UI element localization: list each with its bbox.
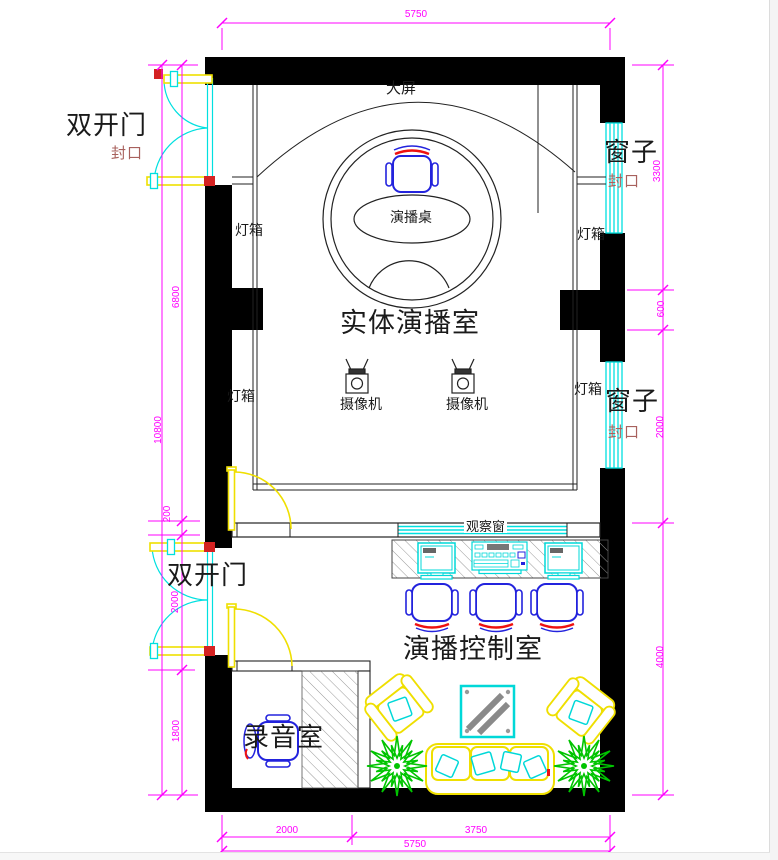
camera-icon-2 (452, 359, 474, 393)
plant-icon-1 (367, 736, 427, 796)
label-observation-window: 观察窗 (464, 520, 507, 533)
operator-chair-1 (406, 584, 458, 632)
studio-inner-shell (232, 85, 606, 490)
operator-chair-2 (470, 584, 522, 632)
label-seal-1: 封口 (111, 146, 143, 161)
dim-left-total: 10800 (153, 407, 165, 453)
label-lightbox-1: 灯箱 (235, 223, 263, 237)
label-camera-2: 摄像机 (446, 397, 488, 411)
dim-bottom-2000: 2000 (267, 825, 307, 837)
stage-chair-icon (386, 146, 438, 192)
sofa (426, 744, 554, 794)
monitor-icon-2 (545, 543, 582, 579)
label-camera-1: 摄像机 (340, 397, 382, 411)
floor-plan-canvas: 双开门 封口 窗子 封口 大屏 演播桌 灯箱 灯箱 实体演播室 灯箱 灯箱 窗子… (0, 0, 778, 860)
dim-right-2000: 2000 (655, 407, 667, 447)
label-window-1: 窗子 (604, 139, 658, 165)
label-stage-desk: 演播桌 (390, 210, 432, 224)
monitor-icon-1 (418, 543, 455, 579)
armchair-left (360, 669, 436, 743)
mid-wall (232, 523, 600, 537)
label-double-door-1: 双开门 (66, 112, 147, 138)
label-big-screen: 大屏 (386, 81, 416, 96)
interior-door-1 (227, 467, 291, 530)
operator-chairs (406, 584, 583, 632)
label-seal-3: 封口 (608, 425, 640, 440)
dim-left-200: 200 (162, 499, 174, 529)
label-room-control: 演播控制室 (403, 636, 543, 663)
label-window-2: 窗子 (605, 388, 659, 414)
label-room-studio: 实体演播室 (340, 310, 480, 337)
dim-bottom-total: 5750 (395, 839, 435, 851)
dim-top-width: 5750 (396, 9, 436, 21)
entry-door-1 (147, 69, 215, 189)
camera-icon-1 (346, 359, 368, 393)
coffee-table (461, 686, 514, 737)
dim-left-1800: 1800 (171, 711, 183, 751)
label-lightbox-3: 灯箱 (227, 389, 255, 403)
label-room-recording: 录音室 (243, 724, 324, 750)
interior-door-2 (227, 604, 292, 667)
dim-right-4000: 4000 (655, 637, 667, 677)
dim-bottom-3750: 3750 (456, 825, 496, 837)
dim-right-3300: 3300 (652, 151, 664, 191)
dim-left-2000: 2000 (170, 582, 182, 622)
canvas-bottom-edge (0, 852, 770, 860)
control-desk (392, 540, 608, 579)
dim-left-6800: 6800 (171, 277, 183, 317)
mixer-console-icon (472, 542, 527, 574)
label-lightbox-2: 灯箱 (577, 227, 605, 241)
canvas-right-edge (769, 0, 778, 860)
label-seal-2: 封口 (608, 174, 640, 189)
dim-right-600: 600 (656, 294, 668, 324)
operator-chair-3 (531, 584, 583, 632)
label-lightbox-4: 灯箱 (574, 382, 602, 396)
